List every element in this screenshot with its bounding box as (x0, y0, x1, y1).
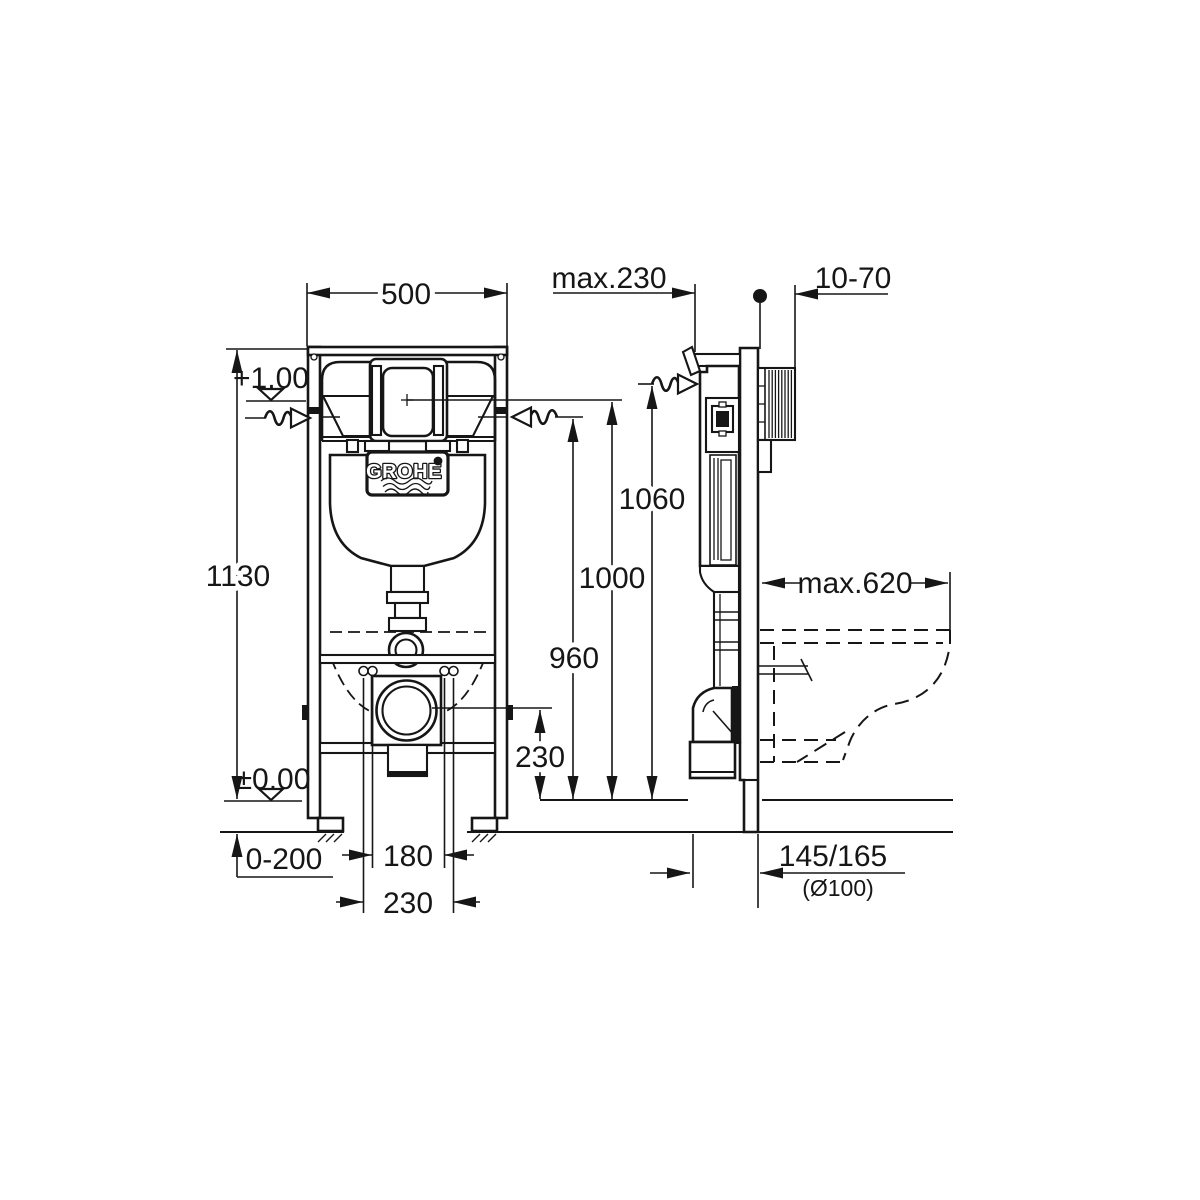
dashed-arc-left (331, 658, 372, 712)
dim-label-145-165: 145/165 (779, 840, 887, 873)
corner-screw-left (311, 354, 317, 360)
wc-pan-outline (760, 630, 950, 762)
fixing-bolt (440, 667, 449, 676)
supply-inlet-left (309, 407, 320, 414)
corner-screw-right (498, 354, 504, 360)
dim-foot-adjust: 0-200 (232, 834, 334, 877)
inlet-valve-bolt (716, 411, 729, 427)
fixing-bolt (368, 667, 377, 676)
wall-reference-dot (753, 289, 767, 303)
side-frame-rail (740, 348, 758, 832)
level-marker-top: +1,00 (233, 362, 309, 401)
dim-label-500: 500 (381, 278, 431, 311)
front-view: GROHE (302, 347, 513, 842)
water-supply-arrow-icon (512, 408, 557, 427)
cross-rail-upper (320, 655, 495, 663)
dim-label-1130: 1130 (206, 560, 271, 593)
wall-anchor-left (302, 705, 309, 720)
water-supply-arrow-icon (265, 409, 310, 428)
dim-drain-offset: 145/165 (Ø100) (650, 834, 905, 908)
threaded-sleeve (758, 368, 795, 472)
water-chamber-right (446, 396, 493, 436)
foot-right (472, 818, 497, 831)
dim-bolt-230: 230 (336, 887, 480, 920)
grohe-logo-text: GROHE (366, 461, 442, 483)
dim-label-230b: 230 (383, 887, 433, 920)
bracket-tab (683, 347, 700, 375)
flush-pipe (387, 566, 428, 667)
top-bracket (694, 354, 740, 366)
side-flush-pipe (714, 592, 739, 688)
dim-label-10-70: 10-70 (815, 262, 892, 295)
frame-top-bar (308, 347, 507, 355)
dim-label-0-200: 0-200 (246, 843, 323, 876)
dim-label-1060: 1060 (619, 483, 686, 516)
dim-label-max620: max.620 (797, 567, 912, 600)
dim-height-1000: 1000 (579, 402, 646, 799)
fixing-rod (758, 659, 812, 681)
cistern-shoulder (700, 566, 739, 592)
dim-label-dia100: (Ø100) (802, 875, 874, 901)
water-chamber-left (323, 396, 370, 436)
installation-diagram: GROHE (0, 0, 1200, 1200)
technical-drawing: GROHE (0, 0, 1200, 1200)
dim-label-180: 180 (383, 840, 433, 873)
dim-max-230: max.230 (551, 262, 695, 352)
foot-left (318, 818, 343, 831)
grohe-logo: GROHE (366, 452, 448, 495)
dim-label-230v: 230 (515, 741, 565, 774)
dim-10-70: 10-70 (795, 262, 891, 369)
logo-dot-icon (434, 457, 443, 466)
supply-inlet-right (495, 407, 506, 414)
dashed-arc-right (444, 658, 485, 712)
dim-label-max230: max.230 (551, 262, 666, 295)
water-supply-arrow-icon (652, 375, 697, 394)
dim-max-620: max.620 (762, 567, 950, 632)
level-marker-floor: ±0,00 (224, 763, 310, 801)
dim-label-960: 960 (549, 642, 599, 675)
dim-width-500: 500 (307, 278, 507, 346)
fixing-bolt (359, 667, 368, 676)
fixing-bolt (449, 667, 458, 676)
dim-height-230: 230 (515, 710, 565, 799)
dim-label-1000: 1000 (579, 562, 646, 595)
drain-elbow (693, 688, 732, 742)
